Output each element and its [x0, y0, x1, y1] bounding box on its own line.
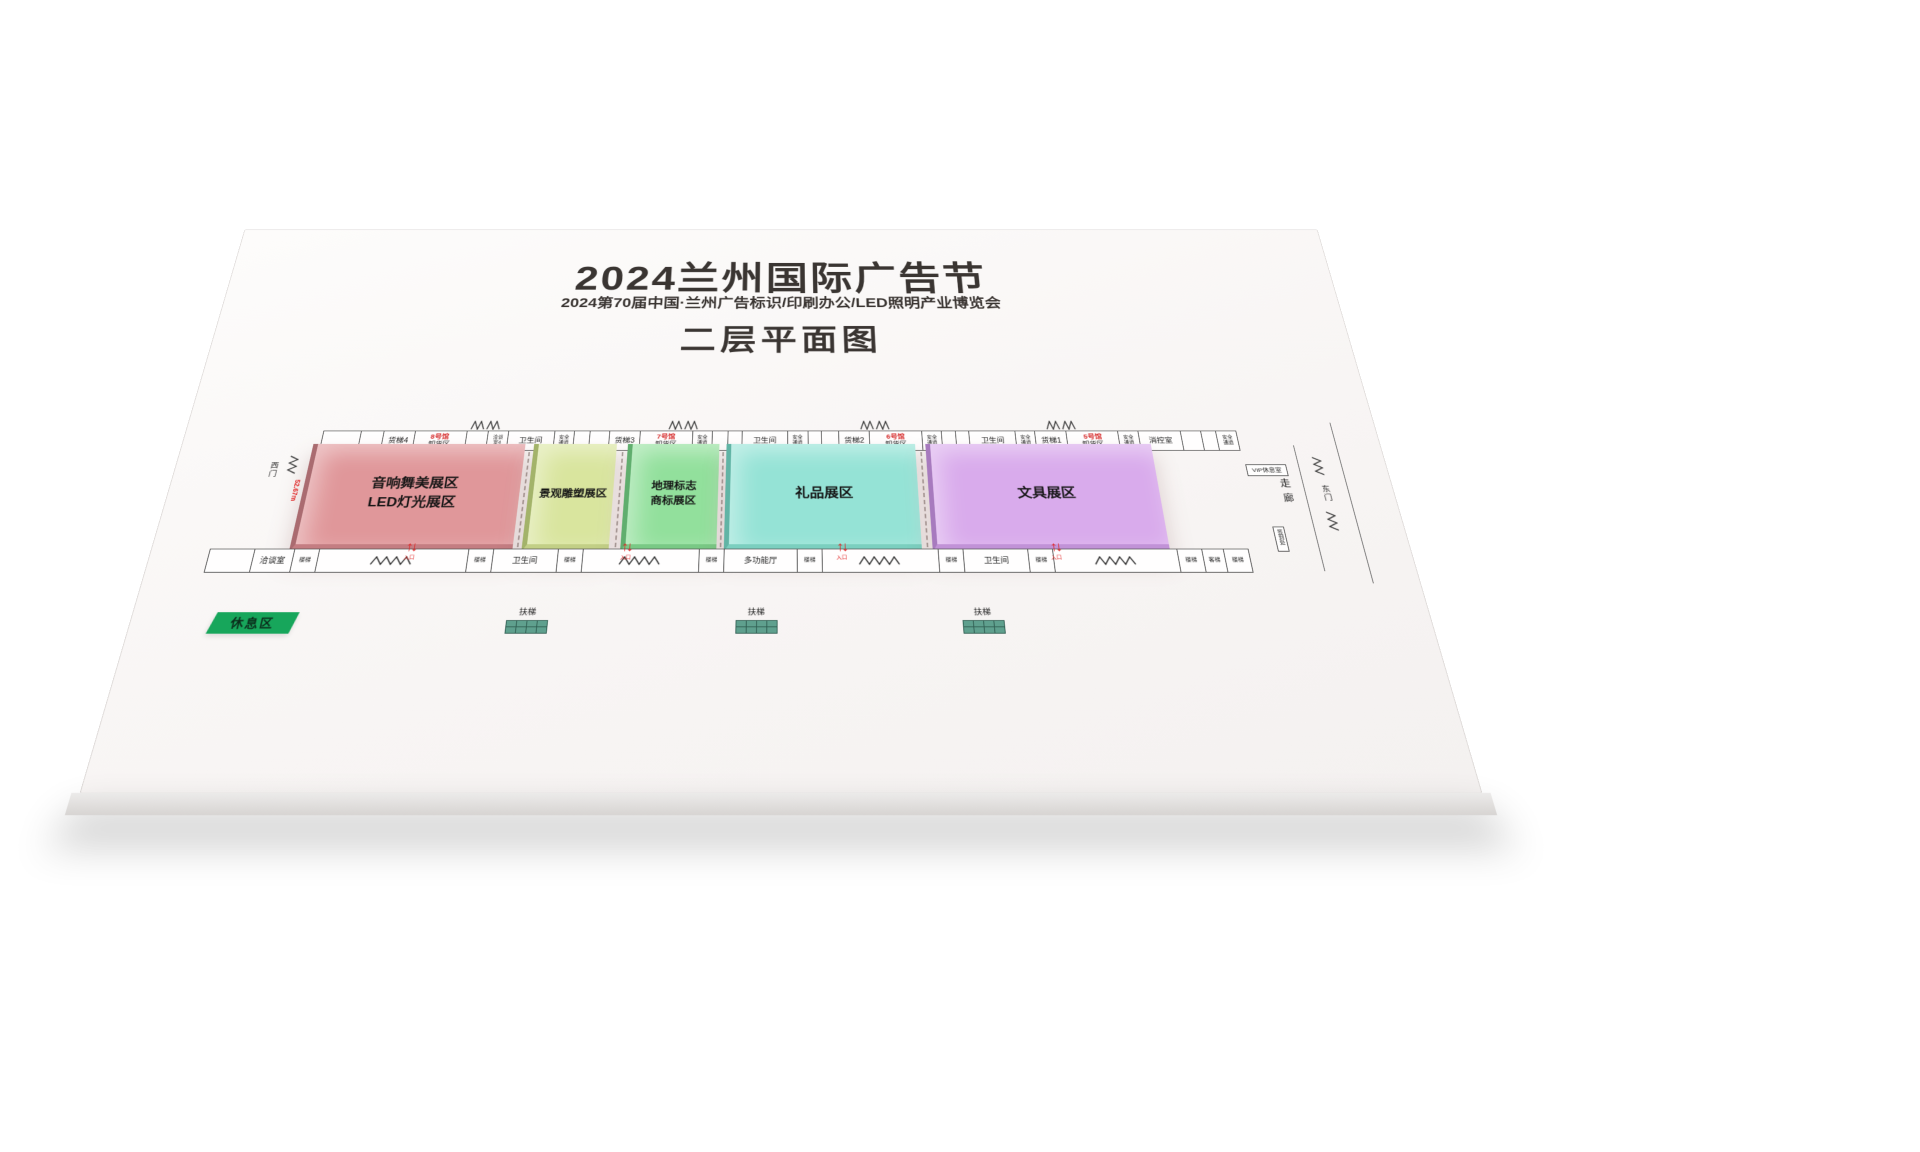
hall-label: LED灯光展区	[366, 493, 457, 512]
event-subtitle: 2024第70届中国·兰州广告标识/印刷办公/LED照明产业博览会	[221, 293, 1340, 312]
escalator-icon	[735, 620, 777, 634]
entrance-marker: ↑↓ 入口	[607, 540, 645, 561]
rest-area-badge: 休息区	[206, 612, 300, 633]
hall-geo-trademark-zone: 地理标志 商标展区	[620, 444, 719, 552]
room-label: 安全	[793, 436, 803, 441]
entrance-arrows-icon: ↑↓	[607, 540, 644, 553]
escalator-group: 扶梯	[956, 604, 1010, 633]
room-label: 安全	[697, 436, 707, 441]
hall-label: 文具展区	[1016, 483, 1077, 502]
stairs-icon	[1325, 511, 1340, 533]
escalator-label: 扶梯	[748, 608, 765, 617]
zigzag-door-icon	[860, 421, 892, 430]
escalator-label: 扶梯	[973, 608, 991, 617]
room-label: 安全	[927, 436, 937, 441]
room-stairs: 楼梯	[699, 549, 725, 573]
hall-landscape-sculpture-zone: 景观雕塑展区	[521, 444, 617, 552]
outer-wall	[1330, 423, 1374, 584]
sign-in-box: 签到处	[1272, 527, 1289, 552]
west-gate-label: 西门	[264, 462, 280, 479]
hall-stationery-zone: 文具展区	[925, 444, 1170, 552]
room-multifunction-hall: 多功能厅	[724, 549, 798, 573]
room-label: 5号馆	[1083, 434, 1103, 441]
room-stairs: 楼梯	[556, 549, 583, 573]
room-label: 通道	[1223, 441, 1234, 446]
entrance-arrows-icon: ↑↓	[823, 540, 860, 553]
room-label: 8号馆	[430, 434, 450, 441]
hall-label: 商标展区	[650, 493, 696, 508]
hall-audio-stage-led-zone: 音响舞美展区 LED灯光展区	[289, 444, 526, 552]
entrance-caption: 入口	[390, 553, 428, 560]
room-label: 7号馆	[657, 434, 676, 441]
entrance-marker: ↑↓ 入口	[823, 540, 860, 561]
east-gate-label: 东门	[1317, 485, 1334, 502]
room-label: 洽谈	[492, 436, 503, 441]
stairs-icon	[285, 455, 299, 476]
zigzag-door-icon	[470, 421, 503, 430]
hall-label: 地理标志	[651, 478, 697, 493]
sign-in-label: 签到处	[1275, 529, 1287, 544]
escalator-icon	[504, 620, 548, 634]
room-stairs: 楼梯	[938, 549, 965, 573]
entrance-caption: 入口	[823, 553, 860, 560]
room-stairs: 楼梯	[798, 549, 823, 573]
room-restroom: 卫生间	[963, 549, 1030, 573]
hall-label: 礼品展区	[795, 483, 854, 502]
entrance-marker: ↑↓ 入口	[1036, 540, 1075, 561]
room-label: 安全	[1123, 436, 1134, 441]
room-label: 安全	[1020, 436, 1031, 441]
escalator-group: 扶梯	[499, 604, 554, 633]
room-negotiation: 洽谈室	[250, 549, 296, 573]
entrance-marker: ↑↓ 入口	[390, 540, 430, 561]
corridor-label: 走廊	[1276, 478, 1298, 508]
escalator-group: 扶梯	[730, 604, 782, 633]
hall-label: 音响舞美展区	[370, 474, 460, 493]
rest-area-label: 休息区	[229, 615, 277, 632]
hall-gift-zone: 礼品展区	[724, 444, 922, 552]
west-gate-group: 西门	[264, 462, 305, 479]
room-empty	[204, 549, 256, 573]
room-safe-passage: 安全 通道	[1216, 431, 1240, 451]
room-label: 6号馆	[886, 434, 905, 441]
escalator-icon	[962, 620, 1005, 634]
bottom-rooms-row: 洽谈室 楼梯 楼梯 卫生间 楼梯 楼梯 多功能厅 楼梯	[204, 549, 1256, 573]
vip-lounge-box: VIP休息室	[1245, 464, 1288, 476]
room-label: 安全	[559, 436, 570, 441]
floor-plan-board-wrap: 2024兰州国际广告节 2024第70届中国·兰州广告标识/印刷办公/LED照明…	[79, 229, 1482, 793]
stairs-icon	[1093, 556, 1139, 565]
floor-plan-title: 二层平面图	[208, 316, 1355, 358]
floor-plan-board: 2024兰州国际广告节 2024第70届中国·兰州广告标识/印刷办公/LED照明…	[79, 229, 1482, 793]
page-background: 2024兰州国际广告节 2024第70届中国·兰州广告标识/印刷办公/LED照明…	[0, 0, 1920, 1152]
room-stairs: 楼梯	[1224, 549, 1254, 573]
entrance-caption: 入口	[607, 553, 644, 560]
floor-plan: 货梯4 8号馆 卸货区 洽谈 室4 卫生间 安全 通道	[203, 431, 1378, 577]
room-label: 安全	[1222, 436, 1233, 441]
zigzag-door-icon	[1045, 421, 1078, 430]
hall-label: 景观雕塑展区	[538, 485, 607, 500]
zigzag-door-icon	[668, 421, 700, 430]
room-stairs: 楼梯	[466, 549, 494, 573]
room-restroom: 卫生间	[491, 549, 559, 573]
entrance-caption: 入口	[1038, 553, 1076, 560]
entrance-arrows-icon: ↑↓	[392, 540, 431, 553]
stairs-icon	[858, 556, 903, 565]
entrance-arrows-icon: ↑↓	[1036, 540, 1074, 553]
escalator-label: 扶梯	[519, 608, 537, 617]
stairs-icon	[1311, 457, 1326, 478]
